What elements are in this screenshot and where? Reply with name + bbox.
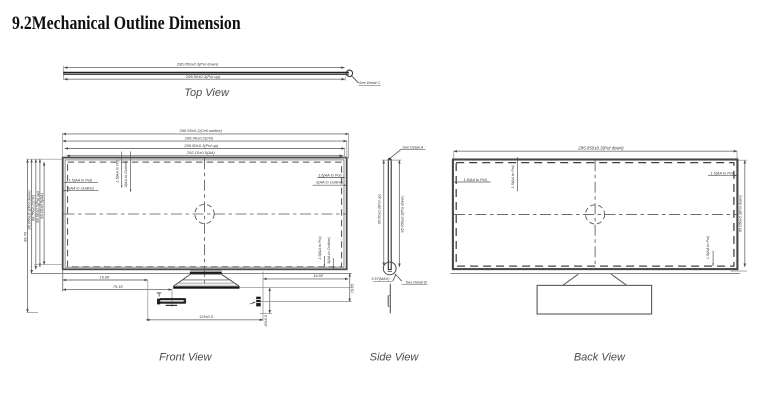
svg-text:95.050±0.3(Pol down): 95.050±0.3(Pol down) — [739, 194, 743, 232]
svg-text:3(AA to Outline): 3(AA to Outline) — [327, 236, 331, 264]
svg-text:16.68: 16.68 — [313, 274, 323, 278]
svg-text:95.50±0.3(Pol up): 95.50±0.3(Pol up) — [378, 193, 382, 224]
svg-text:1.5(AA to Pol): 1.5(AA to Pol) — [463, 178, 487, 182]
svg-text:3(AA to Outline): 3(AA to Outline) — [67, 187, 95, 191]
svg-text:125±0.5: 125±0.5 — [199, 315, 214, 319]
svg-text:295.050±0.3(Pol down): 295.050±0.3(Pol down) — [577, 145, 624, 150]
svg-text:Side View: Side View — [370, 351, 420, 363]
svg-text:95.050±0.3(Pol down): 95.050±0.3(Pol down) — [400, 195, 404, 233]
svg-text:See Detail B: See Detail B — [406, 281, 428, 285]
svg-text:75.18: 75.18 — [113, 285, 123, 289]
svg-text:1.5(AA to Pol): 1.5(AA to Pol) — [318, 236, 322, 260]
svg-text:9.2Mechanical Outline Dimensio: 9.2Mechanical Outline Dimension — [12, 11, 241, 33]
svg-text:96.70: 96.70 — [22, 231, 27, 242]
svg-text:30±0.5: 30±0.5 — [264, 314, 268, 326]
svg-text:3(AA to Outline): 3(AA to Outline) — [316, 181, 344, 185]
svg-text:See Detail A: See Detail A — [402, 145, 423, 149]
svg-text:295.050±0.3(Pol down): 295.050±0.3(Pol down) — [176, 62, 219, 67]
svg-text:1.5(AA to Pol): 1.5(AA to Pol) — [318, 173, 342, 177]
svg-text:See Detail C: See Detail C — [359, 81, 381, 85]
svg-text:3.57(MAX): 3.57(MAX) — [371, 277, 390, 281]
svg-text:292.10±0.5(AA): 292.10±0.5(AA) — [186, 150, 216, 155]
svg-text:16.68: 16.68 — [100, 275, 110, 279]
svg-text:1.5(AA to Pol): 1.5(AA to Pol) — [711, 172, 735, 176]
svg-text:1.5(AA to Pol): 1.5(AA to Pol) — [706, 235, 710, 259]
svg-text:296.55±0.2(Cell outline): 296.55±0.2(Cell outline) — [178, 128, 222, 133]
svg-text:Top View: Top View — [184, 87, 230, 99]
svg-text:3(AA to Outline): 3(AA to Outline) — [124, 160, 128, 188]
svg-text:Back View: Back View — [574, 351, 626, 363]
svg-text:296.00±0.2(CR): 296.00±0.2(CR) — [184, 135, 214, 140]
svg-text:1.5(AA to Pol): 1.5(AA to Pol) — [115, 159, 119, 183]
svg-text:Front View: Front View — [159, 351, 212, 363]
svg-text:19.05: 19.05 — [351, 283, 355, 293]
svg-text:1.5(AA to Pol): 1.5(AA to Pol) — [511, 164, 515, 188]
svg-text:1.5(AA to Pol): 1.5(AA to Pol) — [69, 178, 93, 182]
svg-text:295.50±0.3(Pol up): 295.50±0.3(Pol up) — [183, 143, 219, 148]
svg-text:93.10±0.5(AA): 93.10±0.5(AA) — [39, 192, 44, 218]
svg-text:295.50±0.3(Pol up): 295.50±0.3(Pol up) — [185, 74, 221, 79]
